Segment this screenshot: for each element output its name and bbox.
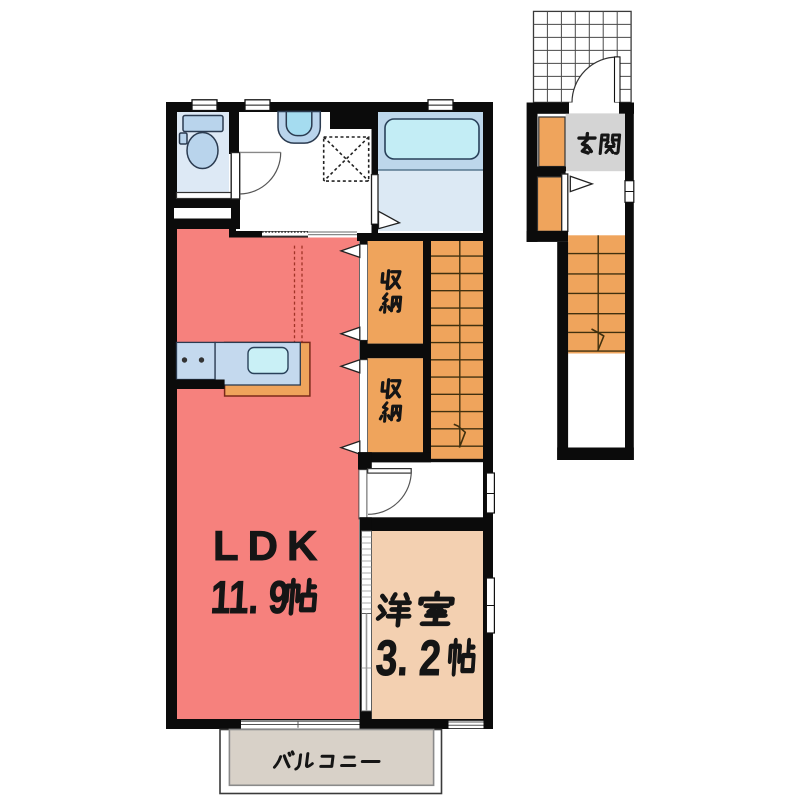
svg-text:LDK: LDK	[213, 522, 326, 569]
svg-text:3. 2: 3. 2	[374, 629, 442, 686]
svg-text:11. 9: 11. 9	[209, 572, 290, 623]
